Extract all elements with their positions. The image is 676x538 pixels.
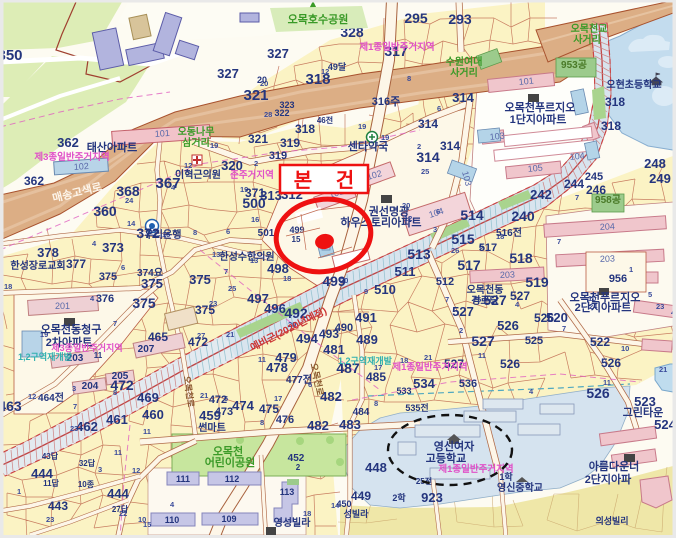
svg-text:오동나무: 오동나무 bbox=[178, 125, 215, 138]
svg-text:526: 526 bbox=[497, 318, 519, 333]
svg-text:319: 319 bbox=[269, 150, 287, 162]
svg-text:319: 319 bbox=[280, 136, 300, 150]
svg-text:318: 318 bbox=[605, 95, 625, 109]
svg-text:8: 8 bbox=[407, 74, 411, 83]
svg-text:323: 323 bbox=[279, 100, 294, 110]
svg-text:제1종일반주거지역: 제1종일반주거지역 bbox=[359, 41, 434, 53]
svg-text:2: 2 bbox=[296, 463, 301, 472]
svg-text:32답: 32답 bbox=[79, 458, 96, 468]
svg-text:449: 449 bbox=[351, 489, 371, 503]
svg-text:25: 25 bbox=[228, 284, 236, 293]
svg-text:953공: 953공 bbox=[561, 59, 587, 71]
svg-text:526: 526 bbox=[601, 356, 621, 370]
svg-text:3: 3 bbox=[433, 225, 437, 234]
svg-text:오목천동: 오목천동 bbox=[467, 283, 504, 296]
svg-text:23: 23 bbox=[46, 515, 54, 524]
svg-text:293: 293 bbox=[448, 11, 472, 27]
svg-text:489: 489 bbox=[356, 332, 378, 347]
svg-text:375: 375 bbox=[189, 272, 211, 287]
svg-text:7: 7 bbox=[224, 267, 228, 276]
svg-text:23: 23 bbox=[656, 302, 664, 311]
svg-text:473: 473 bbox=[215, 406, 233, 418]
svg-text:462: 462 bbox=[76, 419, 98, 434]
svg-text:483: 483 bbox=[339, 417, 361, 432]
svg-text:이혁근의원: 이혁근의원 bbox=[175, 168, 221, 181]
svg-text:242: 242 bbox=[530, 187, 552, 202]
svg-text:삼거리: 삼거리 bbox=[182, 136, 210, 149]
svg-text:204: 204 bbox=[82, 381, 99, 392]
svg-text:26: 26 bbox=[451, 246, 459, 255]
svg-text:1,2구역재개발: 1,2구역재개발 bbox=[338, 355, 393, 366]
svg-text:360: 360 bbox=[93, 203, 117, 219]
svg-text:378: 378 bbox=[37, 245, 59, 260]
svg-text:958공: 958공 bbox=[595, 194, 621, 206]
svg-text:249: 249 bbox=[649, 171, 671, 186]
svg-text:11: 11 bbox=[478, 351, 486, 360]
svg-text:8: 8 bbox=[374, 399, 378, 408]
svg-text:373: 373 bbox=[102, 240, 124, 255]
svg-text:오목호수공원: 오목호수공원 bbox=[288, 12, 349, 26]
svg-text:11: 11 bbox=[258, 355, 266, 364]
svg-text:경로당: 경로당 bbox=[471, 294, 499, 307]
svg-text:성빌라: 성빌라 bbox=[344, 508, 370, 519]
svg-text:498: 498 bbox=[267, 261, 289, 276]
svg-text:248: 248 bbox=[644, 156, 666, 171]
svg-text:오목천푸르지오: 오목천푸르지오 bbox=[505, 100, 576, 114]
svg-text:525: 525 bbox=[525, 335, 543, 347]
svg-text:25: 25 bbox=[421, 167, 429, 176]
svg-text:482: 482 bbox=[307, 418, 329, 433]
svg-text:314: 314 bbox=[416, 149, 440, 165]
svg-text:오목천교: 오목천교 bbox=[571, 22, 608, 35]
svg-text:그린타운: 그린타운 bbox=[623, 405, 663, 419]
svg-text:203: 203 bbox=[500, 269, 515, 280]
svg-text:450: 450 bbox=[336, 499, 351, 509]
svg-text:923: 923 bbox=[421, 490, 443, 505]
svg-text:201: 201 bbox=[55, 301, 70, 311]
svg-text:113: 113 bbox=[280, 487, 295, 497]
svg-text:2학: 2학 bbox=[392, 492, 406, 503]
svg-text:510: 510 bbox=[374, 282, 396, 297]
svg-text:우리은행: 우리은행 bbox=[145, 228, 182, 241]
svg-text:43답: 43답 bbox=[42, 451, 59, 461]
svg-text:7: 7 bbox=[557, 237, 561, 246]
svg-text:377: 377 bbox=[66, 257, 86, 271]
svg-text:사거리: 사거리 bbox=[573, 33, 601, 46]
svg-text:10: 10 bbox=[621, 344, 629, 353]
svg-text:321: 321 bbox=[243, 87, 268, 104]
svg-text:12: 12 bbox=[184, 161, 192, 170]
svg-text:7: 7 bbox=[113, 319, 117, 328]
svg-text:하우스토리아파트: 하우스토리아파트 bbox=[341, 215, 422, 229]
svg-text:112: 112 bbox=[225, 474, 240, 484]
svg-text:고등학교: 고등학교 bbox=[426, 451, 466, 465]
svg-text:101: 101 bbox=[518, 75, 534, 87]
svg-text:444: 444 bbox=[107, 486, 129, 501]
svg-text:46전: 46전 bbox=[317, 115, 333, 125]
svg-text:472: 472 bbox=[188, 335, 208, 349]
svg-text:318: 318 bbox=[305, 71, 330, 88]
svg-text:6: 6 bbox=[437, 104, 441, 113]
svg-text:522: 522 bbox=[590, 335, 610, 349]
svg-text:109: 109 bbox=[221, 514, 236, 524]
svg-text:3: 3 bbox=[98, 465, 102, 474]
svg-text:103: 103 bbox=[489, 130, 505, 142]
svg-text:18: 18 bbox=[303, 509, 311, 518]
svg-text:21: 21 bbox=[659, 365, 667, 374]
svg-text:어린이공원: 어린이공원 bbox=[205, 455, 256, 469]
svg-text:472: 472 bbox=[209, 394, 227, 406]
svg-text:318: 318 bbox=[601, 119, 621, 133]
svg-text:443: 443 bbox=[48, 499, 68, 513]
svg-text:469: 469 bbox=[137, 390, 159, 405]
svg-text:535전: 535전 bbox=[405, 402, 428, 413]
svg-text:314: 314 bbox=[418, 117, 438, 131]
svg-text:한성장로교회: 한성장로교회 bbox=[10, 259, 65, 272]
svg-text:105: 105 bbox=[527, 162, 543, 174]
svg-text:7: 7 bbox=[445, 295, 449, 304]
svg-text:375: 375 bbox=[132, 295, 156, 311]
svg-text:474: 474 bbox=[232, 398, 254, 413]
svg-text:526: 526 bbox=[586, 385, 610, 401]
svg-text:2: 2 bbox=[459, 326, 463, 335]
svg-text:517: 517 bbox=[479, 242, 497, 254]
svg-text:27답: 27답 bbox=[112, 504, 129, 514]
svg-text:영신여자: 영신여자 bbox=[434, 439, 475, 453]
svg-text:321: 321 bbox=[248, 132, 268, 146]
svg-text:464전: 464전 bbox=[38, 391, 64, 404]
svg-text:9: 9 bbox=[364, 287, 368, 296]
svg-text:14: 14 bbox=[127, 219, 136, 228]
svg-text:240: 240 bbox=[511, 208, 535, 224]
svg-text:460: 460 bbox=[142, 407, 164, 422]
svg-text:7: 7 bbox=[562, 324, 566, 333]
svg-text:8: 8 bbox=[260, 418, 264, 427]
svg-text:368: 368 bbox=[116, 183, 140, 199]
svg-text:7: 7 bbox=[575, 193, 579, 202]
svg-text:314: 314 bbox=[440, 139, 460, 153]
svg-text:518: 518 bbox=[509, 250, 533, 266]
svg-text:2단지아파: 2단지아파 bbox=[585, 472, 632, 486]
svg-text:제1종일반주거지역: 제1종일반주거지역 bbox=[392, 361, 467, 373]
svg-text:316주: 316주 bbox=[372, 95, 400, 108]
svg-text:375: 375 bbox=[195, 303, 215, 317]
svg-text:6: 6 bbox=[226, 227, 230, 236]
svg-text:485: 485 bbox=[366, 370, 386, 384]
svg-text:110: 110 bbox=[165, 515, 180, 525]
svg-text:519: 519 bbox=[525, 274, 549, 290]
svg-text:515: 515 bbox=[451, 231, 475, 247]
svg-text:111: 111 bbox=[176, 474, 190, 484]
svg-text:536: 536 bbox=[459, 378, 477, 390]
svg-text:11답: 11답 bbox=[43, 478, 59, 488]
svg-text:203: 203 bbox=[600, 253, 615, 264]
svg-text:362: 362 bbox=[57, 135, 79, 150]
svg-text:481: 481 bbox=[323, 342, 345, 357]
svg-text:12: 12 bbox=[132, 466, 140, 475]
svg-text:517: 517 bbox=[457, 257, 481, 273]
svg-text:477전: 477전 bbox=[286, 373, 312, 386]
svg-text:375: 375 bbox=[99, 271, 117, 283]
svg-text:526: 526 bbox=[500, 357, 520, 371]
svg-text:102: 102 bbox=[73, 161, 89, 172]
svg-text:1학: 1학 bbox=[499, 471, 513, 482]
svg-text:1: 1 bbox=[17, 487, 21, 496]
svg-text:534: 534 bbox=[413, 376, 435, 391]
svg-text:371: 371 bbox=[245, 186, 265, 200]
svg-text:16: 16 bbox=[251, 215, 259, 224]
svg-text:10종: 10종 bbox=[78, 480, 95, 489]
svg-text:207: 207 bbox=[138, 344, 155, 355]
svg-text:327: 327 bbox=[267, 46, 289, 61]
svg-text:491: 491 bbox=[355, 310, 377, 325]
svg-text:1단지아파트: 1단지아파트 bbox=[510, 112, 567, 126]
svg-text:오목천: 오목천 bbox=[213, 444, 243, 458]
svg-text:8: 8 bbox=[193, 228, 197, 237]
svg-text:204: 204 bbox=[600, 221, 616, 232]
svg-text:318: 318 bbox=[295, 122, 315, 136]
svg-text:295: 295 bbox=[404, 10, 428, 26]
svg-text:썬마트: 썬마트 bbox=[198, 421, 226, 434]
svg-text:21: 21 bbox=[424, 353, 432, 362]
svg-text:센타약국: 센타약국 bbox=[348, 139, 388, 153]
svg-text:한성수한의원: 한성수한의원 bbox=[219, 250, 274, 263]
svg-text:2: 2 bbox=[254, 159, 258, 168]
svg-text:19: 19 bbox=[210, 141, 218, 150]
svg-text:512: 512 bbox=[436, 276, 454, 288]
svg-text:533: 533 bbox=[396, 386, 411, 396]
svg-text:영성빌라: 영성빌라 bbox=[274, 516, 312, 529]
svg-text:448: 448 bbox=[365, 460, 387, 475]
svg-text:11: 11 bbox=[143, 427, 151, 436]
svg-text:205: 205 bbox=[112, 371, 129, 382]
svg-text:104: 104 bbox=[569, 150, 585, 162]
svg-text:514: 514 bbox=[460, 207, 484, 223]
svg-text:49달: 49달 bbox=[328, 61, 347, 72]
svg-text:수원여대: 수원여대 bbox=[446, 55, 483, 68]
svg-text:21: 21 bbox=[200, 391, 208, 400]
svg-text:526: 526 bbox=[534, 311, 554, 325]
svg-text:21: 21 bbox=[226, 330, 234, 339]
svg-text:권선명광: 권선명광 bbox=[369, 204, 409, 218]
svg-text:465: 465 bbox=[148, 330, 168, 344]
svg-text:2단지아파트: 2단지아파트 bbox=[575, 300, 632, 314]
svg-text:494: 494 bbox=[296, 331, 318, 346]
svg-text:15: 15 bbox=[143, 520, 151, 529]
svg-text:15: 15 bbox=[292, 235, 301, 244]
svg-text:461: 461 bbox=[106, 412, 128, 427]
svg-text:516전: 516전 bbox=[496, 226, 522, 239]
svg-text:준주거지역: 준주거지역 bbox=[230, 169, 274, 181]
svg-text:527: 527 bbox=[471, 333, 495, 349]
svg-text:513: 513 bbox=[407, 246, 431, 262]
svg-text:476: 476 bbox=[276, 414, 294, 426]
svg-text:오현초등학교: 오현초등학교 bbox=[606, 78, 661, 91]
svg-text:490: 490 bbox=[335, 322, 353, 334]
svg-text:제3종일반주거지역: 제3종일반주거지역 bbox=[34, 151, 109, 163]
svg-text:501: 501 bbox=[258, 228, 275, 239]
svg-text:101: 101 bbox=[154, 128, 170, 139]
svg-text:244: 244 bbox=[564, 177, 584, 191]
svg-text:375: 375 bbox=[141, 276, 163, 291]
svg-text:484: 484 bbox=[353, 407, 370, 418]
svg-text:5: 5 bbox=[648, 290, 652, 299]
svg-text:376: 376 bbox=[96, 293, 114, 305]
svg-text:7: 7 bbox=[73, 402, 77, 411]
svg-text:영신중학교: 영신중학교 bbox=[497, 481, 543, 494]
svg-text:건: 건 bbox=[336, 169, 354, 192]
svg-text:20: 20 bbox=[257, 75, 267, 85]
svg-text:496: 496 bbox=[264, 301, 286, 316]
svg-text:11: 11 bbox=[114, 448, 122, 457]
svg-text:3: 3 bbox=[72, 384, 76, 393]
svg-text:의성빌리: 의성빌리 bbox=[595, 515, 628, 526]
svg-text:314: 314 bbox=[452, 90, 474, 105]
svg-text:1: 1 bbox=[629, 265, 633, 274]
svg-text:478: 478 bbox=[266, 360, 288, 375]
svg-text:527: 527 bbox=[510, 289, 530, 303]
svg-text:28: 28 bbox=[264, 110, 272, 119]
svg-text:6: 6 bbox=[121, 263, 125, 272]
svg-text:19: 19 bbox=[358, 122, 366, 131]
svg-text:327: 327 bbox=[217, 66, 239, 81]
svg-text:본: 본 bbox=[294, 170, 312, 192]
svg-text:511: 511 bbox=[395, 264, 416, 279]
svg-text:12: 12 bbox=[28, 392, 36, 401]
svg-text:사거리: 사거리 bbox=[450, 66, 478, 79]
svg-text:1,2구역재개발: 1,2구역재개발 bbox=[18, 351, 73, 362]
svg-text:499: 499 bbox=[322, 273, 346, 289]
svg-text:956: 956 bbox=[609, 273, 627, 285]
svg-text:362: 362 bbox=[24, 174, 44, 188]
svg-text:아름다운너: 아름다운너 bbox=[589, 459, 640, 473]
svg-text:245: 245 bbox=[585, 171, 603, 183]
svg-text:18: 18 bbox=[4, 282, 12, 291]
svg-text:오목천동청구: 오목천동청구 bbox=[41, 322, 102, 336]
